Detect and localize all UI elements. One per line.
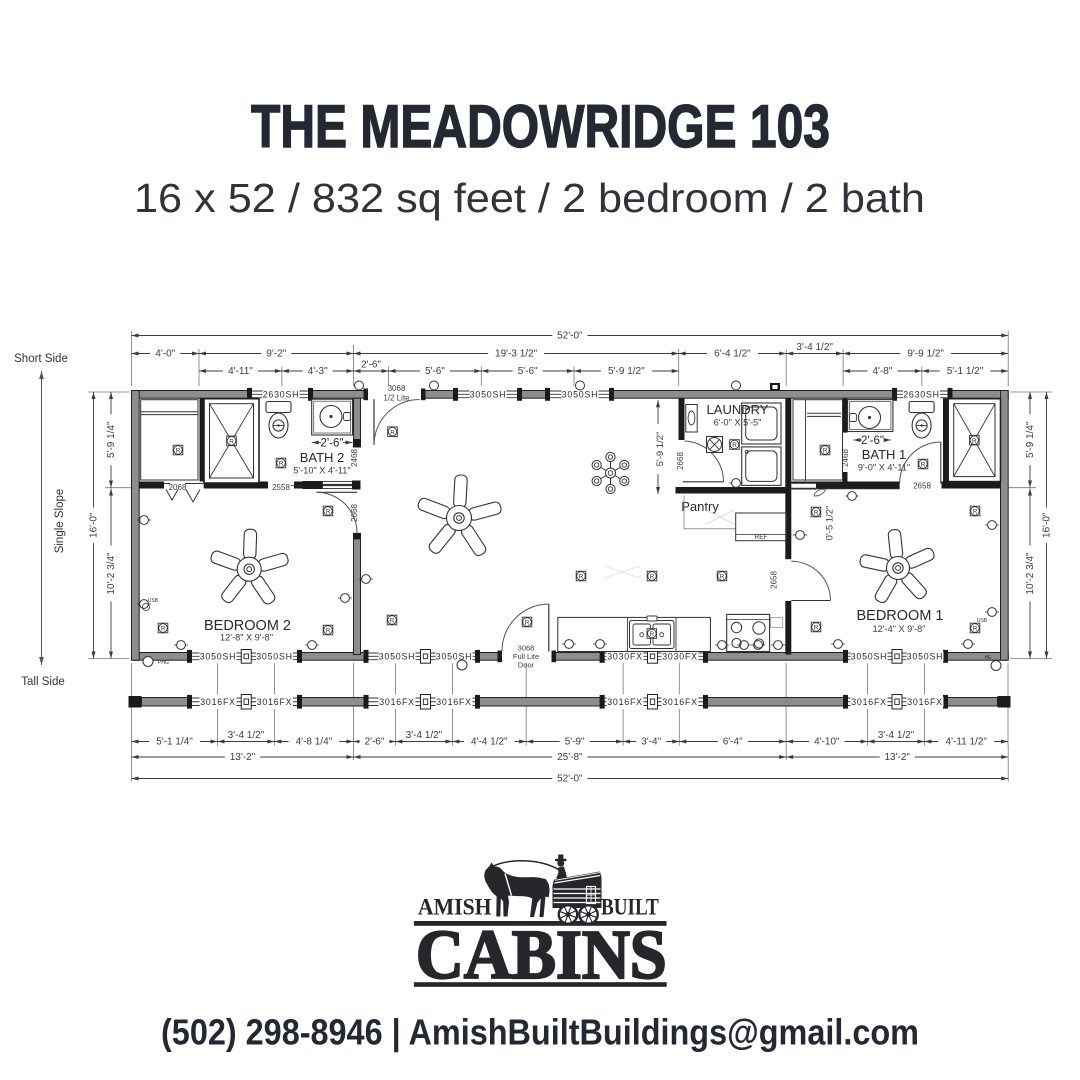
svg-text:3016FX: 3016FX xyxy=(257,697,293,707)
svg-text:3050SH: 3050SH xyxy=(470,389,507,399)
svg-text:2668: 2668 xyxy=(676,452,685,470)
svg-text:5'-9 1/4": 5'-9 1/4" xyxy=(1025,421,1036,458)
svg-text:2630SH: 2630SH xyxy=(903,389,940,399)
svg-text:R: R xyxy=(649,631,654,638)
svg-text:2'-6": 2'-6" xyxy=(861,435,884,447)
svg-text:R: R xyxy=(279,461,284,468)
svg-text:R: R xyxy=(390,429,395,436)
svg-text:R: R xyxy=(814,510,819,517)
svg-text:3050SH: 3050SH xyxy=(851,651,888,661)
svg-text:4'-11 1/2": 4'-11 1/2" xyxy=(946,737,988,748)
svg-text:3016FX: 3016FX xyxy=(436,697,472,707)
svg-text:4'-8": 4'-8" xyxy=(872,366,892,377)
svg-text:HE: HE xyxy=(985,655,993,661)
svg-text:16 x 52 / 832 sq feet / 2 bedr: 16 x 52 / 832 sq feet / 2 bedroom / 2 ba… xyxy=(134,175,925,221)
svg-text:2658: 2658 xyxy=(770,571,779,589)
svg-text:9'-9 1/2": 9'-9 1/2" xyxy=(907,349,944,360)
svg-text:R: R xyxy=(650,574,655,581)
svg-text:R: R xyxy=(229,438,234,445)
svg-text:R: R xyxy=(972,438,977,445)
svg-text:6'-4 1/2": 6'-4 1/2" xyxy=(714,349,751,360)
svg-text:R: R xyxy=(814,625,819,632)
svg-text:3'-4 1/2": 3'-4 1/2" xyxy=(406,730,443,741)
svg-text:PHG: PHG xyxy=(158,660,169,666)
svg-text:3'-4 1/2": 3'-4 1/2" xyxy=(796,342,833,353)
svg-text:Short Side: Short Side xyxy=(14,353,68,365)
svg-text:5'-9 1/4": 5'-9 1/4" xyxy=(106,421,117,458)
svg-text:3016FX: 3016FX xyxy=(607,697,643,707)
svg-text:THE MEADOWRIDGE 103: THE MEADOWRIDGE 103 xyxy=(251,93,830,160)
svg-text:3'-4 1/2": 3'-4 1/2" xyxy=(878,730,915,741)
svg-text:BEDROOM 1: BEDROOM 1 xyxy=(856,608,943,624)
svg-text:5'-6": 5'-6" xyxy=(425,366,445,377)
svg-text:R: R xyxy=(326,628,331,635)
svg-text:R: R xyxy=(973,626,978,633)
svg-text:16'-0": 16'-0" xyxy=(89,512,100,538)
svg-text:52'-0": 52'-0" xyxy=(557,331,583,342)
svg-text:5'-9": 5'-9" xyxy=(565,737,585,748)
svg-text:4'-8 1/4": 4'-8 1/4" xyxy=(296,737,333,748)
svg-text:9'-2": 9'-2" xyxy=(266,349,286,360)
svg-text:BATH 2: BATH 2 xyxy=(300,450,345,465)
svg-text:10'-2 3/4": 10'-2 3/4" xyxy=(1025,552,1036,595)
svg-text:2668: 2668 xyxy=(350,504,359,522)
svg-text:2'-6": 2'-6" xyxy=(321,438,344,450)
svg-text:USB: USB xyxy=(148,598,159,604)
svg-text:2'-6": 2'-6" xyxy=(364,737,384,748)
svg-text:3016FX: 3016FX xyxy=(200,697,236,707)
svg-text:5'-1 1/4": 5'-1 1/4" xyxy=(156,737,193,748)
svg-text:Single Slope: Single Slope xyxy=(54,489,66,554)
svg-text:Tall Side: Tall Side xyxy=(21,676,64,688)
svg-text:4'-4 1/2": 4'-4 1/2" xyxy=(471,737,508,748)
svg-text:Door: Door xyxy=(518,661,535,670)
svg-text:3030FX: 3030FX xyxy=(607,651,643,661)
svg-text:LAUNDRY: LAUNDRY xyxy=(707,402,769,417)
svg-text:R: R xyxy=(973,509,978,516)
svg-text:4'-11": 4'-11" xyxy=(228,366,253,377)
svg-text:5'-9 1/2": 5'-9 1/2" xyxy=(655,432,666,467)
svg-text:52'-0": 52'-0" xyxy=(557,774,583,785)
svg-text:10'-2 3/4": 10'-2 3/4" xyxy=(106,552,117,595)
svg-text:R: R xyxy=(390,618,395,625)
svg-text:3016FX: 3016FX xyxy=(851,697,887,707)
svg-text:R: R xyxy=(326,509,331,516)
svg-text:(502) 298-8946 | AmishBuiltBui: (502) 298-8946 | AmishBuiltBuildings@gma… xyxy=(161,1012,919,1054)
svg-text:25'-8": 25'-8" xyxy=(557,752,583,763)
svg-text:2468: 2468 xyxy=(350,449,359,467)
svg-text:5'-10" X 4'-11": 5'-10" X 4'-11" xyxy=(293,466,350,476)
svg-text:5'-1 1/2": 5'-1 1/2" xyxy=(947,366,984,377)
svg-text:2630SH: 2630SH xyxy=(263,389,300,399)
svg-text:13'-2": 13'-2" xyxy=(230,752,256,763)
svg-text:5'-6": 5'-6" xyxy=(518,366,538,377)
svg-text:BATH 1: BATH 1 xyxy=(862,447,907,462)
svg-text:5'-9 1/2": 5'-9 1/2" xyxy=(608,366,645,377)
svg-text:3068: 3068 xyxy=(388,384,406,393)
svg-text:16'-0": 16'-0" xyxy=(1042,512,1053,538)
svg-text:R: R xyxy=(176,448,181,455)
svg-text:13'-2": 13'-2" xyxy=(884,752,910,763)
svg-text:3050SH: 3050SH xyxy=(907,651,944,661)
svg-text:12'-8" X 9'-8": 12'-8" X 9'-8" xyxy=(220,633,273,643)
svg-text:USB: USB xyxy=(977,618,988,624)
svg-text:R: R xyxy=(525,620,530,627)
svg-text:R: R xyxy=(921,462,926,469)
svg-text:3'-4": 3'-4" xyxy=(641,737,661,748)
svg-text:3016FX: 3016FX xyxy=(379,697,415,707)
svg-text:3050SH: 3050SH xyxy=(256,651,293,661)
svg-text:6'-4": 6'-4" xyxy=(723,737,743,748)
svg-text:3050SH: 3050SH xyxy=(379,651,416,661)
svg-text:2'-6": 2'-6" xyxy=(361,360,381,371)
svg-text:2658: 2658 xyxy=(913,481,931,490)
svg-text:3016FX: 3016FX xyxy=(662,697,698,707)
svg-text:6'-0" X 5'-5": 6'-0" X 5'-5" xyxy=(714,418,762,428)
svg-text:R: R xyxy=(720,574,725,581)
svg-text:R: R xyxy=(732,442,737,449)
svg-text:4'-3": 4'-3" xyxy=(308,366,328,377)
svg-text:2558: 2558 xyxy=(272,483,290,492)
svg-text:R: R xyxy=(579,574,584,581)
svg-text:3050SH: 3050SH xyxy=(562,389,599,399)
svg-text:0'-5 1/2": 0'-5 1/2" xyxy=(825,506,836,541)
svg-text:Pantry: Pantry xyxy=(681,499,719,514)
svg-text:R: R xyxy=(161,626,166,633)
svg-text:3050SH: 3050SH xyxy=(436,651,473,661)
svg-text:4'-0": 4'-0" xyxy=(155,349,175,360)
svg-text:9'-0" X 4'-11": 9'-0" X 4'-11" xyxy=(858,463,910,473)
svg-text:4'-10": 4'-10" xyxy=(814,737,840,748)
svg-text:3050SH: 3050SH xyxy=(200,651,237,661)
svg-text:3'-4 1/2": 3'-4 1/2" xyxy=(228,730,265,741)
svg-text:19'-3 1/2": 19'-3 1/2" xyxy=(495,349,538,360)
svg-text:3030FX: 3030FX xyxy=(662,651,698,661)
svg-text:3016FX: 3016FX xyxy=(907,697,943,707)
svg-text:REF: REF xyxy=(755,534,768,541)
svg-text:12'-4" X 9'-8": 12'-4" X 9'-8" xyxy=(873,624,926,634)
svg-text:CABINS: CABINS xyxy=(416,917,667,994)
svg-text:R: R xyxy=(823,448,828,455)
